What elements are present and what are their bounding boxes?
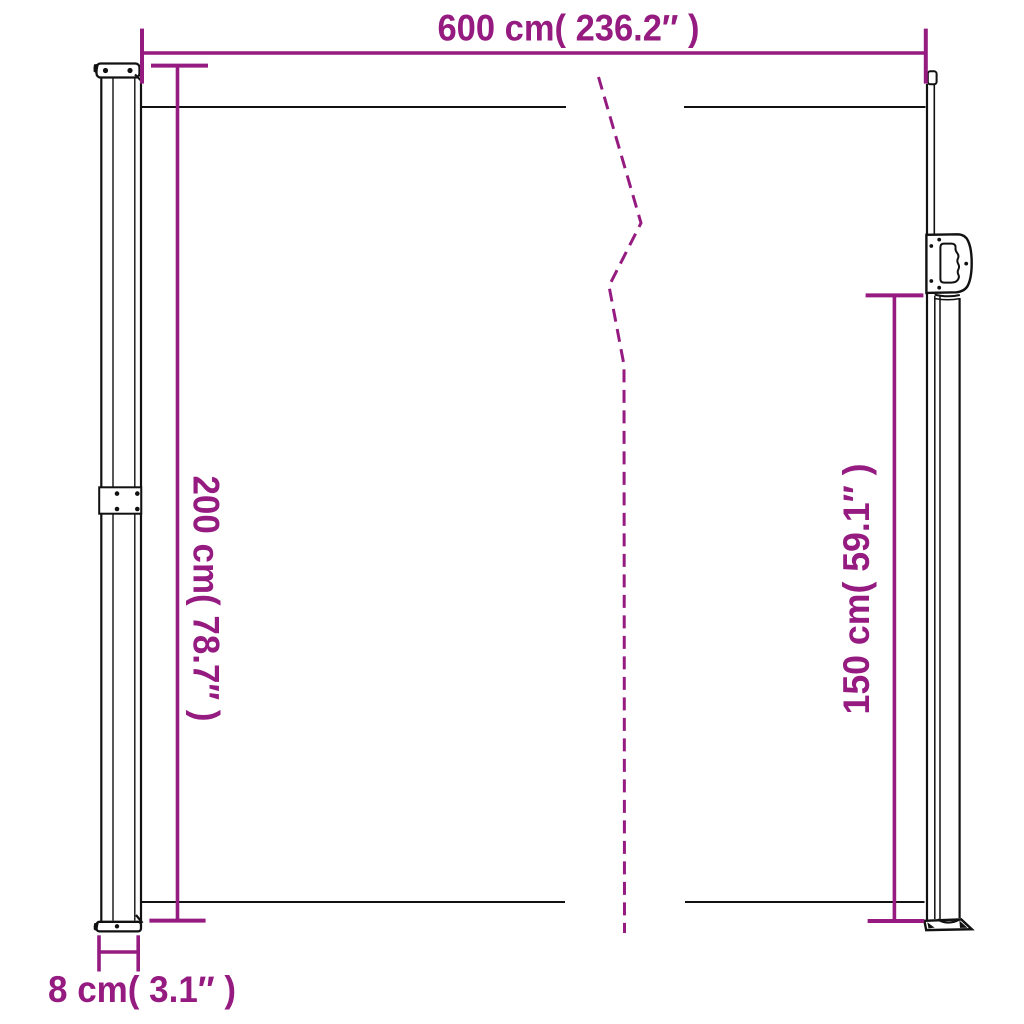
svg-text:600 cm( 236.2″ ): 600 cm( 236.2″ ) bbox=[438, 8, 700, 49]
svg-text:8 cm( 3.1″ ): 8 cm( 3.1″ ) bbox=[48, 969, 236, 1010]
svg-text:150 cm( 59.1″ ): 150 cm( 59.1″ ) bbox=[836, 464, 877, 715]
svg-text:200 cm( 78.7″ ): 200 cm( 78.7″ ) bbox=[186, 476, 227, 722]
